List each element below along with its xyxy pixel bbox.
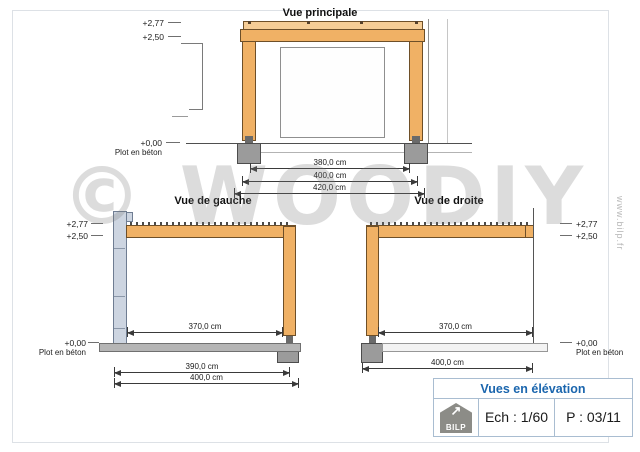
dimension-label: 370,0 cm [439,322,472,331]
house-wall [113,211,127,344]
leader-dash [168,36,181,37]
leader-dash [88,342,99,343]
extension-tick [114,378,115,388]
post-anchor [412,136,420,143]
dimension-outer: 420,0 cm [234,193,425,194]
gutter-bracket-line [172,116,188,117]
ground-line-secondary [261,152,472,153]
footing [404,143,428,164]
batten-tick [248,21,251,24]
extension-tick [417,176,418,186]
title-block-title: Vues en élévation [434,379,632,399]
ground-note: Plot en béton [576,348,636,357]
ground-note: Plot en béton [98,148,162,157]
website-watermark: www.bilp.fr [615,196,625,251]
dimension-label: 400,0 cm [431,358,464,367]
dimension-outer: 400,0 cm [114,383,299,384]
extension-tick [289,367,290,377]
wall-corner-line [447,19,448,143]
page-cell: P : 03/11 [555,399,632,436]
gutter-bracket-line [202,43,203,110]
footing [361,343,383,363]
dimension-inner: 370,0 cm [378,332,533,333]
post [366,226,379,336]
extension-tick [114,367,115,377]
leader-dash [560,223,572,224]
beam [126,225,296,238]
dimension-label: 370,0 cm [189,322,222,331]
logo-text: BILP [440,423,472,432]
beam [240,29,425,42]
extension-tick [282,327,283,337]
title-block: Vues en élévation ↗ BILP Ech : 1/60 P : … [433,378,633,437]
extension-tick [532,327,533,337]
wall-joint [114,248,125,249]
batten-tick [415,21,418,24]
view-title: Vue principale [240,7,400,19]
beam [366,225,534,238]
post-anchor [286,336,293,343]
leader-dash [91,235,103,236]
dimension-outer: 400,0 cm [362,368,533,369]
gutter-bracket-line [181,43,203,44]
leader-dash [166,142,180,143]
elevation-label-mid: +2,50 [42,231,88,241]
wall-top-step [126,212,133,222]
ground-line [186,143,472,144]
extension-tick [409,163,410,173]
extension-tick [532,363,533,373]
scale-cell: Ech : 1/60 [479,399,554,436]
wall-joint [114,296,125,297]
dimension-label: 420,0 cm [313,183,346,192]
leader-dash [168,22,181,23]
wall-joint [114,328,125,329]
leader-dash [560,342,572,343]
leader-dash [91,223,103,224]
dimension-mid: 400,0 cm [242,181,418,182]
dimension-label: 400,0 cm [190,373,223,382]
view-title: Vue de droite [384,195,514,207]
elevation-label-ground: +0,00 [116,138,162,148]
dimension-label: 390,0 cm [186,362,219,371]
elevation-label-mid: +2,50 [118,32,164,42]
extension-tick [127,327,128,337]
batten-tick [360,21,363,24]
ground-slab [99,343,301,352]
arrow-up-right-icon: ↗ [440,403,472,418]
wall-corner-line [428,19,429,143]
extension-tick [378,327,379,337]
house-wall-line [533,208,534,344]
extension-tick [250,163,251,173]
window-outline [280,47,385,138]
dimension-label: 400,0 cm [314,171,347,180]
elevation-label-top: +2,77 [118,18,164,28]
extension-tick [242,176,243,186]
footing [237,143,261,164]
post-anchor [245,136,253,143]
dimension-label: 380,0 cm [314,158,347,167]
elevation-drawing-page: Vue principale +2,77 +2,50 +0,00 Plot en… [0,0,640,452]
gutter-bracket-line [189,109,203,110]
dimension-inner: 370,0 cm [127,332,283,333]
elevation-label-top: +2,77 [42,219,88,229]
leader-dash [560,235,572,236]
elevation-label-ground: +0,00 [40,338,86,348]
beam-end-joint [525,226,526,238]
post-anchor [369,336,376,343]
view-title: Vue de gauche [148,195,278,207]
ground-slab [382,343,548,352]
post-right [409,41,423,141]
bilp-logo: ↗ BILP [440,403,472,433]
extension-tick [298,378,299,388]
elevation-label-ground: +0,00 [576,338,622,348]
post [283,226,296,336]
dimension-inner: 380,0 cm [250,168,410,169]
extension-tick [362,363,363,373]
post-left [242,41,256,141]
batten-tick [307,21,310,24]
ground-note: Plot en béton [28,348,86,357]
